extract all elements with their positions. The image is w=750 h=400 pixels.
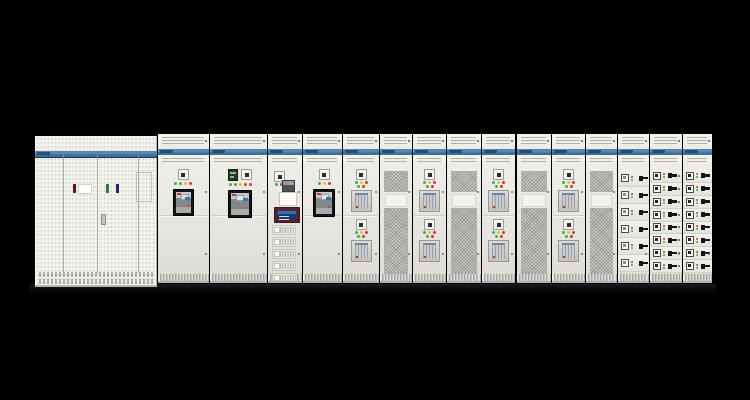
cabinet-door [650,167,682,274]
led-green [179,182,182,185]
led-yellow [567,231,570,234]
cabinet-mesh-door-2 [447,134,481,283]
louver-plate [591,194,612,207]
brand-label [652,150,665,153]
led-red [663,264,665,266]
led-indicators [696,173,698,178]
rotary-handle [639,193,643,198]
feeder-module [621,259,629,267]
vent-grille-top [683,134,712,149]
led-red [328,206,330,208]
feeder-module [653,185,661,193]
led-red [631,244,633,246]
vent-grille-top [343,134,379,149]
screw [678,239,680,241]
led-indicators [631,244,633,249]
brand-label [345,150,358,153]
led-yellow [233,211,235,213]
vent-grille-top [586,134,617,149]
breaker-handle-green [106,184,109,193]
led-green [696,215,698,217]
feeder-row [618,255,649,272]
feeder-module [621,242,629,250]
rotary-handle [668,186,672,191]
bottom-vent-row [39,279,153,284]
rotary-handle [701,225,705,230]
led-green [663,176,665,178]
cabinet-acb-3 [303,134,342,283]
led-green [495,235,498,238]
led-green [631,196,633,198]
led-red [249,183,252,186]
feeder-module [686,236,694,244]
vent-grille-top [618,134,649,149]
led-red [244,183,247,186]
feeder-row [650,209,682,222]
door-seam [63,154,64,273]
rotary-handle [668,225,672,230]
vent-grille-mid [552,155,585,167]
cabinet-door [413,167,446,274]
screw [708,252,710,254]
led-indicators [631,176,633,181]
screw [613,140,615,142]
led-yellow [567,181,570,184]
led-green [696,189,698,191]
feeder-row [683,209,712,222]
led-red [696,251,698,253]
relay-module [282,180,295,192]
screw [263,140,265,142]
breaker-control-unit [241,169,252,180]
acb-breaker-window [313,189,335,217]
vent-grille-top [650,134,682,149]
cabinet-mccb-3 [482,134,515,283]
mccb-bay [343,169,379,215]
led-indicators [423,181,436,184]
breaker-control-unit [356,169,367,180]
vent-grille-top [268,134,302,149]
cabinet-mesh-door-3 [517,134,551,283]
led-green [565,185,568,188]
brand-label [620,150,633,153]
door-handle [101,214,106,225]
led-indicators [663,238,665,243]
mccb-module [488,240,509,262]
feeder-row [618,187,649,204]
led-red [572,181,575,184]
door-seam [553,215,584,216]
mccb-module [419,190,440,212]
vented-module [272,261,296,271]
led-red [570,235,573,238]
label-tag [78,184,92,194]
feeder-module [621,174,629,182]
led-indicators [355,181,368,184]
led-red [433,181,436,184]
led-red [631,261,633,263]
door-seam [414,215,445,216]
led-indicators [565,185,573,188]
cabinet-door [552,167,585,274]
led-red [631,176,633,178]
rotary-handle [639,261,643,266]
led-green [663,202,665,204]
led-green [663,254,665,256]
louver-plate [385,194,407,207]
feeder-module [621,191,629,199]
led-green [696,254,698,256]
cabinet-feeder-1 [618,134,649,283]
feeder-module [653,198,661,206]
mccb-bay [413,219,446,265]
screw [581,140,583,142]
led-green [631,264,633,266]
rotary-handle [668,212,672,217]
breaker-control-unit [424,169,435,180]
feeder-row [683,183,712,196]
mesh-vent-top [384,171,408,192]
control-button [278,175,282,179]
control-button [428,173,432,177]
vented-module [272,237,296,247]
vent-grille-top [447,134,481,149]
feeder-row [683,234,712,247]
led-green [631,179,633,181]
vent-grille-mid [210,155,267,167]
feeder-row [683,222,712,235]
led-indicators [663,212,665,217]
breaker-handle-red [73,184,76,193]
teal-label [326,197,331,200]
vent-grille-top [517,134,551,149]
led-red [631,210,633,212]
control-button [181,173,185,177]
mesh-door-panel [590,208,613,274]
brand-label [588,150,601,153]
door-seam [97,154,98,273]
feeder-module [653,172,661,180]
led-indicators [426,235,434,238]
led-indicators [631,193,633,198]
feeder-row [650,196,682,209]
breaker-window [562,243,575,259]
vent-grille-mid [268,155,302,167]
cabinet-mesh-door-4 [586,134,617,283]
feeder-row [683,170,712,183]
led-red [500,235,503,238]
cabinet-feeder-2 [650,134,682,283]
led-indicators [229,183,252,186]
control-button [567,173,571,177]
feeder-module [653,236,661,244]
acb-breaker-window [173,189,194,216]
cabinet-door [482,167,515,274]
led-green [696,202,698,204]
feeder-module [686,172,694,180]
screw [442,140,444,142]
vent-grille-top [303,134,342,149]
led-indicators [492,181,505,184]
vented-module [272,225,296,235]
led-red [431,235,434,238]
led-indicators [565,235,573,238]
rotary-handle [639,176,643,181]
led-red [663,173,665,175]
vent-grille-mid [618,155,649,167]
led-red [631,227,633,229]
rotary-handle [701,212,705,217]
vent-grille-mid [413,155,446,167]
feeder-row [683,247,712,260]
feeder-module [653,262,661,270]
brand-label [685,150,698,153]
led-indicators [696,225,698,230]
door-seam [344,215,378,216]
mesh-vent-top [451,171,477,192]
rotary-handle [668,264,672,269]
led-red [365,231,368,234]
screw [678,175,680,177]
bottom-vent-row [39,272,153,277]
control-button [245,173,249,177]
led-green [663,241,665,243]
cabinet-door [210,167,267,274]
led-green [631,230,633,232]
led-red [696,238,698,240]
rotary-handle [668,173,672,178]
led-yellow [428,181,431,184]
led-indicators [663,225,665,230]
rotary-handle [639,227,643,232]
vent-grille-top [482,134,515,149]
led-red [696,225,698,227]
mesh-vent-top [521,171,547,192]
led-green [495,185,498,188]
vent-grille-mid [447,155,481,167]
feeder-row [683,260,712,273]
cabinet-door [517,167,551,274]
feeder-rows [683,170,712,273]
led-yellow [428,231,431,234]
led-red [663,199,665,201]
brand-label [160,150,173,153]
feeder-module [653,249,661,257]
rotary-handle [668,238,672,243]
led-green [562,231,565,234]
brand-label [37,152,50,155]
led-green [565,235,568,238]
led-yellow [178,209,180,211]
vent-grille-top [552,134,585,149]
led-green [234,183,237,186]
teal-label [185,197,190,200]
feeder-row [650,183,682,196]
cabinet-mccb-4 [552,134,585,283]
breaker-face [176,192,191,213]
louver-plate [452,194,476,207]
feeder-module [621,225,629,233]
screw [678,226,680,228]
led-indicators [696,251,698,256]
feeder-module [621,208,629,216]
mccb-bay [552,169,585,215]
cabinet-feeder-3 [683,134,712,283]
led-green [423,231,426,234]
module-stack [272,225,296,285]
cabinet-door [586,167,617,274]
mccb-bay [482,219,515,265]
led-green [492,231,495,234]
led-green [423,181,426,184]
screw [477,140,479,142]
led-green [631,213,633,215]
led-green [426,235,429,238]
rotary-handle [639,244,643,249]
vent-grille-mid [650,155,682,167]
mesh-door-panel [521,208,547,274]
feeder-module [686,223,694,231]
vent-grille-mid [158,155,209,167]
door-seam [483,215,514,216]
cabinet-door [158,167,209,274]
mesh-vent-top [590,171,613,192]
cabinet-door [343,167,379,274]
mccb-bay [482,169,515,215]
led-yellow [360,181,363,184]
led-green [357,185,360,188]
brand-label [554,150,567,153]
led-red [245,207,247,209]
document-pocket [279,192,297,206]
mccb-module [558,190,579,212]
led-red [328,182,331,185]
led-indicators [663,251,665,256]
led-red [570,185,573,188]
led-yellow [360,231,363,234]
screw [678,201,680,203]
cabinet-acb-1 [158,134,209,283]
cabinet-door [447,167,481,274]
led-green [696,241,698,243]
led-indicators [174,182,192,185]
vent-grille-mid [303,155,342,167]
mccb-bay [343,219,379,265]
feeder-module [686,262,694,270]
breaker-window [423,193,436,209]
vent-grille-top [210,134,267,149]
rotary-handle [701,251,705,256]
mccb-module [351,240,372,262]
screw [547,140,549,142]
screw [678,265,680,267]
feeder-row [650,170,682,183]
brand-label [484,150,497,153]
led-red [502,181,505,184]
screw [645,140,647,142]
vent-grille-mid [482,155,515,167]
led-indicators [631,210,633,215]
feeder-module [686,249,694,257]
cabinet-door [618,167,649,274]
screw [511,140,513,142]
led-indicators [495,185,503,188]
brand-label [212,150,225,153]
led-green [492,181,495,184]
rotary-handle [701,238,705,243]
feeder-row [618,204,649,221]
screw [408,140,410,142]
led-red [362,235,365,238]
led-indicators [357,235,365,238]
mesh-door-panel [451,208,477,274]
led-yellow [239,183,242,186]
led-red [433,231,436,234]
rotary-handle [701,264,705,269]
brand-label [305,150,318,153]
breaker-window [355,193,368,209]
led-indicators [355,231,368,234]
hmi-screen [277,210,297,220]
feeder-row [618,170,649,187]
breaker-window [562,193,575,209]
led-red [187,205,189,207]
mccb-module [488,190,509,212]
led-indicators [631,261,633,266]
led-indicators [696,264,698,269]
vent-grille-mid [683,155,712,167]
led-indicators [492,231,505,234]
vented-module [272,273,296,283]
mccb-bay [413,169,446,215]
mccb-module [558,240,579,262]
feeder-row [650,260,682,273]
breaker-window [492,193,505,209]
rotary-handle [701,186,705,191]
control-button [497,223,501,227]
led-red [189,182,192,185]
screw [708,140,710,142]
acb-assembly [224,169,256,218]
led-indicators [631,227,633,232]
led-red [631,193,633,195]
rotary-handle [668,199,672,204]
led-red [500,185,503,188]
scene [0,0,750,400]
led-indicators [663,186,665,191]
acb-assembly [311,169,337,217]
vent-grille-top [380,134,412,149]
led-yellow [323,182,326,185]
led-red [663,212,665,214]
feeder-module [686,211,694,219]
cabinet-hmi-control [268,134,302,283]
led-red [362,185,365,188]
control-button [497,173,501,177]
cabinet-door [268,167,302,274]
vent-grille-top [413,134,446,149]
control-button [428,223,432,227]
led-red [365,181,368,184]
breaker-control-unit [493,169,504,180]
led-indicators [696,186,698,191]
screw [678,188,680,190]
led-red [696,199,698,201]
breaker-window [355,243,368,259]
led-green [355,231,358,234]
vent-grille-mid [586,155,617,167]
breaker-window [423,243,436,259]
